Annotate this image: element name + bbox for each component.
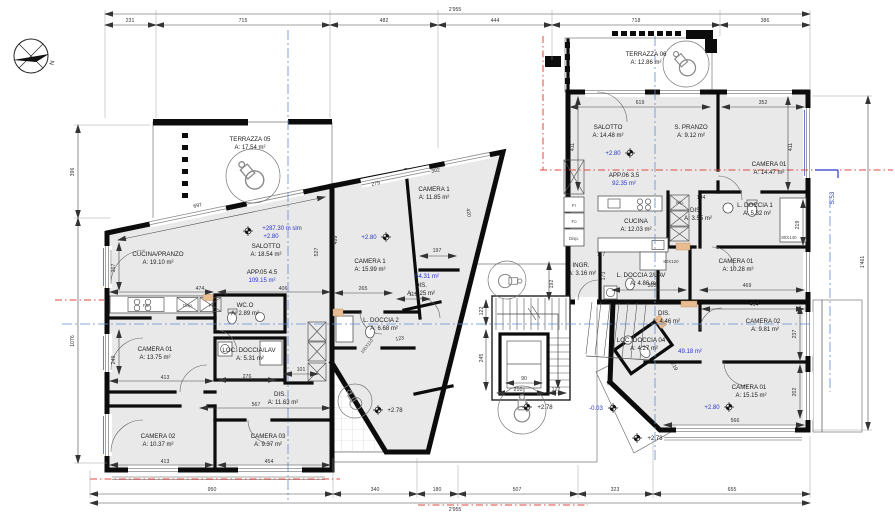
elevation-label: +2.78	[387, 408, 403, 414]
unit-area: 54.31 m²	[415, 274, 439, 280]
room-name: CAMERA 01	[719, 258, 754, 265]
room-area: A: 9.12 m²	[677, 133, 705, 139]
kitchen-label: Disp.	[569, 236, 579, 241]
elevation-label: +287.30 m slm	[262, 226, 302, 232]
room-area: A: 17.54 m²	[234, 145, 265, 151]
room-area: A: 3.55 m²	[684, 216, 712, 222]
room-name: CAMERA 1	[354, 258, 386, 265]
dim-label: 323	[611, 487, 620, 493]
room-name: DIS.	[274, 391, 286, 398]
dim-label: 619	[636, 100, 645, 106]
size-label: 80X140	[781, 235, 797, 240]
dim-overall-right: 1'461	[860, 256, 866, 269]
dim-label: 413	[161, 375, 170, 381]
room-fills	[107, 92, 808, 470]
dim-label: 122	[479, 307, 485, 316]
unit-area: 109.15 m²	[248, 278, 275, 284]
room-name: TERRAZZA 05	[230, 136, 271, 143]
unit-area: 92.35 m²	[612, 181, 636, 187]
dim-label: 90	[521, 376, 527, 382]
room-name: L. DOCCIA 2/LAV	[617, 272, 667, 279]
dim-label: 192	[549, 280, 555, 289]
dim-label: 507	[513, 487, 522, 493]
room-name: TERRAZZA 06	[626, 51, 667, 58]
room-area: A: 15.15 m²	[735, 393, 766, 399]
room-area: A: 2.89 m²	[231, 311, 259, 317]
dim-label: 474	[196, 286, 205, 292]
room-name: CUCINA	[624, 218, 649, 225]
room-name: LOC. DOCCIA 04	[617, 337, 666, 344]
elevation-label: -0.03	[589, 406, 603, 412]
room-name: CAMERA 02	[746, 318, 781, 325]
dim-label: 340	[371, 487, 380, 493]
size-label: 80X120	[663, 259, 679, 264]
room-name: DIS.	[658, 310, 670, 317]
kitchen-label: Fo	[571, 219, 577, 224]
dim-chain-right: 1'461	[812, 96, 872, 430]
room-name: L. DOCCIA 2	[363, 317, 399, 324]
dim-label: 117	[597, 252, 605, 258]
room-area: A: 5.31 m²	[236, 356, 264, 362]
room-name: CAMERA 1	[418, 186, 450, 193]
room-area: A: 4.46 m²	[652, 319, 680, 325]
dim-label: 413	[161, 459, 170, 465]
kitchen-label: Fr	[209, 303, 214, 308]
dim-label: 715	[239, 18, 248, 24]
room-name: LOC. DOCCIA/LAV	[222, 347, 276, 354]
dim-label: 655	[728, 487, 737, 493]
room-name: DIS.	[690, 207, 702, 214]
dim-label: 482	[380, 18, 389, 24]
dim-label: 1076	[70, 335, 76, 347]
room-area: A: 11.85 m²	[419, 195, 450, 201]
unit-label: APP.06 3.5	[609, 172, 640, 179]
unit-area: 49.18 m²	[678, 349, 702, 355]
room-area: A: 9.37 m²	[254, 442, 282, 448]
room-area: A: 10.37 m²	[142, 442, 173, 448]
dim-overall-bottom: 2'955	[449, 507, 462, 513]
room-area: A: 18.54 m²	[250, 252, 281, 258]
room-area: A: 11.63 m²	[268, 400, 299, 406]
dim-label: 469	[743, 283, 752, 289]
dim-label: 414	[750, 302, 759, 308]
room-area: A: 14.48 m²	[592, 133, 623, 139]
elevation-label: +2.80	[704, 405, 720, 411]
north-compass: N	[13, 39, 56, 73]
room-area: A: 14.47 m²	[753, 170, 784, 176]
room-name: S. PRANZO	[674, 124, 708, 131]
dim-label: 173	[601, 272, 607, 281]
room-area: A: 4.86 m²	[630, 281, 658, 287]
room-name: DIS.	[415, 282, 427, 289]
dim-label: 567	[252, 402, 261, 408]
dim-label: 210	[514, 387, 523, 393]
north-label: N	[49, 60, 57, 66]
room-area: A: 4.25 m²	[407, 291, 435, 297]
room-area: A: 5.32 m²	[743, 211, 771, 217]
floor-plan-drawing: N S.53 2'955 231 715 482 444 718 386 2'9…	[0, 0, 895, 530]
dim-label: 396	[70, 168, 76, 177]
dim-label: 527	[314, 248, 320, 257]
dim-label: 197	[433, 248, 442, 254]
room-name: WC.O	[237, 302, 254, 309]
section-label: S.53	[829, 191, 836, 204]
dim-label: 245	[479, 354, 485, 363]
room-name: CAMERA 01	[138, 346, 173, 353]
room-name: CAMERA 01	[732, 384, 767, 391]
dim-label: 454	[265, 459, 274, 465]
room-name: CUCINA/PRANZO	[132, 251, 183, 258]
dim-label: 411	[570, 143, 576, 151]
elevation-label: +2.80	[263, 234, 279, 240]
dim-label: 406	[279, 286, 288, 292]
elevation-label: +2.78	[537, 405, 553, 411]
dim-label: 101	[297, 367, 306, 373]
room-area: A: 12.03 m²	[620, 227, 651, 233]
room-name: SALOTTO	[252, 243, 281, 250]
kitchen-label: Disp.	[183, 303, 193, 308]
dim-label: 122	[552, 387, 561, 393]
room-name: L. DOCCIA 1	[737, 202, 773, 209]
room-area: A: 19.10 m²	[142, 260, 173, 266]
dim-label: 104	[697, 195, 706, 201]
dim-label: 367	[111, 264, 117, 273]
dim-label: 231	[126, 18, 135, 24]
room-name: INGR.	[572, 262, 589, 269]
dim-label: 237	[792, 330, 798, 339]
dim-label: 499	[333, 236, 339, 245]
dim-label: 386	[761, 18, 770, 24]
room-area: A: 9.81 m²	[751, 327, 779, 333]
dim-label: 202	[792, 388, 798, 397]
kitchen-label: Fo.	[143, 303, 149, 308]
room-name: CAMERA 02	[141, 433, 176, 440]
unit-label: APP.05 4.5	[247, 269, 278, 276]
dim-label: 276	[243, 374, 252, 380]
dim-label: 950	[208, 487, 217, 493]
room-area: A: 12.86 m²	[630, 60, 661, 66]
dim-label: 180	[433, 487, 442, 493]
stair-core	[492, 296, 570, 400]
section-marker: S.53	[815, 170, 838, 204]
dim-label: 265	[359, 286, 368, 292]
elevation-label: +2.80	[605, 151, 621, 157]
room-name: CAMERA 03	[251, 433, 286, 440]
room-area: A: 3.16 m²	[568, 271, 596, 277]
dim-label: 444	[491, 18, 500, 24]
dim-label: 249	[111, 356, 117, 365]
dim-label: 219	[795, 221, 801, 230]
dim-label: 718	[632, 18, 641, 24]
kitchen-label: Fr	[572, 203, 577, 208]
elevation-label: +2.78	[647, 436, 663, 442]
rip-label: Rip.	[676, 200, 684, 205]
room-area: A: 13.75 m²	[139, 355, 170, 361]
room-name: CAMERA 01	[752, 161, 787, 168]
dim-label: 411	[788, 143, 794, 151]
dim-label: 566	[731, 418, 740, 424]
room-name: SALOTTO	[594, 124, 623, 131]
room-area: A: 10.28 m²	[722, 267, 753, 273]
balcony-hatch	[813, 300, 862, 432]
dim-overall-top: 2'955	[449, 7, 462, 13]
room-area: A: 6.68 m²	[370, 326, 398, 332]
elevation-label: +2.80	[361, 235, 377, 241]
room-area: A: 4.27 m²	[630, 346, 658, 352]
room-area: A: 15.99 m²	[354, 267, 385, 273]
dim-label: 352	[759, 100, 768, 106]
floor-plan-canvas: N S.53 2'955 231 715 482 444 718 386 2'9…	[0, 0, 895, 530]
